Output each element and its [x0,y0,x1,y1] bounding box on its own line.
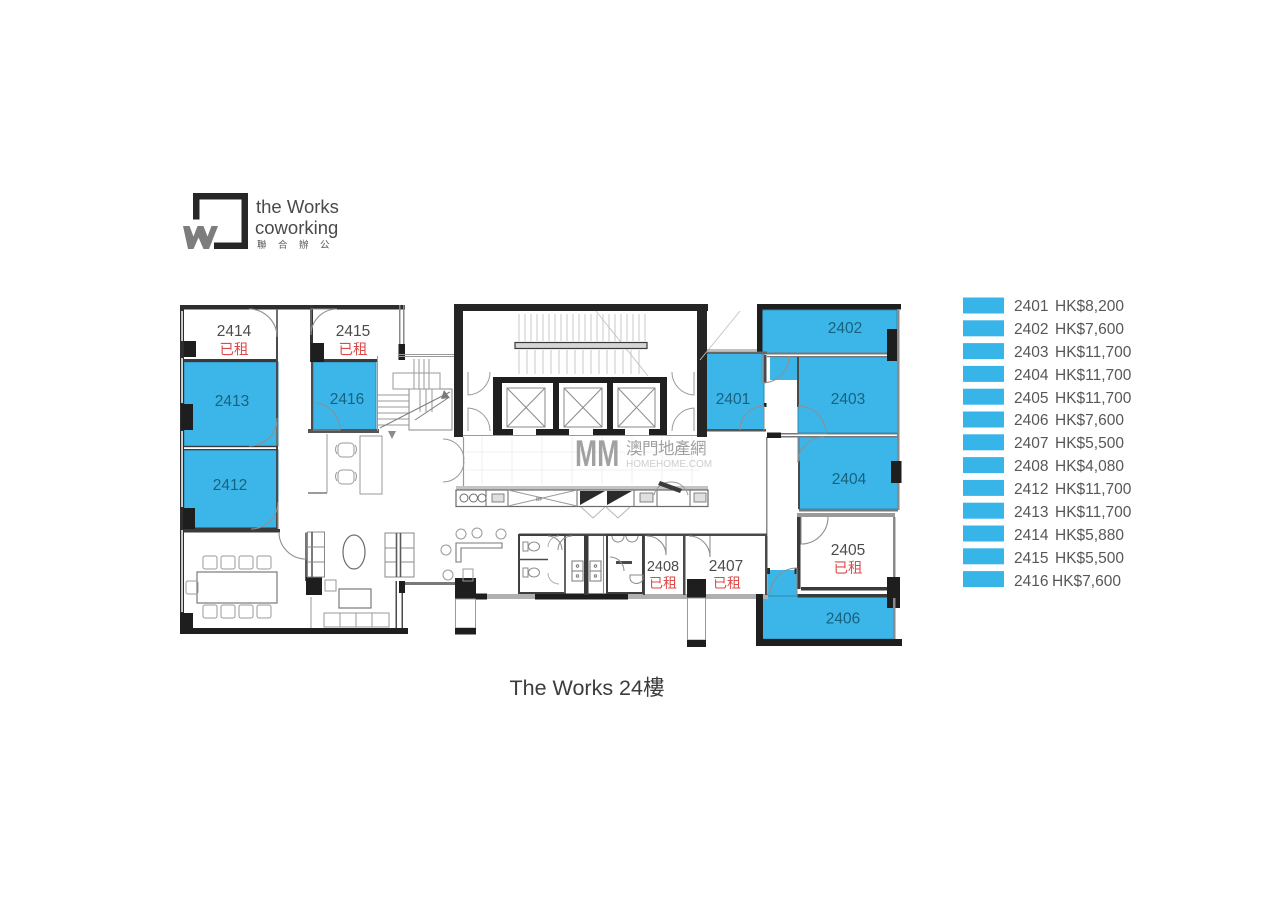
svg-text:2403: 2403 [831,391,865,408]
svg-text:the Works: the Works [256,196,339,217]
svg-text:HK$5,500: HK$5,500 [1055,550,1124,567]
svg-text:HK$5,880: HK$5,880 [1055,527,1124,544]
svg-text:2406: 2406 [826,611,860,628]
svg-text:2406: 2406 [1014,412,1048,429]
svg-text:已租: 已租 [339,342,368,359]
svg-text:澳門地產網: 澳門地產網 [626,439,706,458]
svg-text:2403: 2403 [1014,344,1048,361]
svg-text:2412: 2412 [213,477,247,494]
svg-text:HOMEHOME.COM: HOMEHOME.COM [626,459,712,470]
svg-text:2416: 2416 [1014,573,1048,590]
svg-text:HK$11,700: HK$11,700 [1055,481,1132,498]
svg-text:BF: BF [536,497,542,503]
svg-text:HK$11,700: HK$11,700 [1055,390,1132,407]
svg-text:HK$7,600: HK$7,600 [1052,573,1121,590]
svg-text:2407: 2407 [709,558,743,575]
svg-text:2416: 2416 [330,391,364,408]
svg-text:2414: 2414 [217,323,252,340]
svg-text:已租: 已租 [649,575,677,591]
svg-text:聯合辦公: 聯合辦公 [257,239,341,251]
svg-text:HK$11,700: HK$11,700 [1055,367,1132,384]
svg-text:2408: 2408 [647,559,679,575]
svg-text:MM: MM [575,433,619,474]
svg-text:coworking: coworking [255,217,338,238]
svg-text:HK$11,700: HK$11,700 [1055,344,1132,361]
svg-text:HK$7,600: HK$7,600 [1055,412,1124,429]
svg-text:已租: 已租 [713,575,741,591]
svg-text:2413: 2413 [215,393,249,410]
svg-text:2405: 2405 [831,542,865,559]
svg-text:2404: 2404 [832,471,867,488]
svg-text:已租: 已租 [220,342,249,359]
svg-text:HK$8,200: HK$8,200 [1055,298,1124,315]
svg-text:2407: 2407 [1014,435,1048,452]
svg-text:2408: 2408 [1014,458,1048,475]
svg-text:2405: 2405 [1014,390,1048,407]
svg-text:已租: 已租 [834,560,863,577]
svg-text:2414: 2414 [1014,527,1049,544]
svg-text:2412: 2412 [1014,481,1048,498]
svg-text:HK$7,600: HK$7,600 [1055,321,1124,338]
svg-text:2402: 2402 [1014,321,1048,338]
svg-text:2401: 2401 [716,391,750,408]
svg-text:2402: 2402 [828,320,862,337]
svg-text:2415: 2415 [336,323,370,340]
svg-text:HK$11,700: HK$11,700 [1055,504,1132,521]
svg-text:2401: 2401 [1014,298,1048,315]
svg-text:2413: 2413 [1014,504,1048,521]
svg-text:The Works 24樓: The Works 24樓 [510,676,665,700]
svg-text:2415: 2415 [1014,550,1048,567]
svg-text:HK$4,080: HK$4,080 [1055,458,1124,475]
svg-text:HK$5,500: HK$5,500 [1055,435,1124,452]
svg-text:2404: 2404 [1014,367,1049,384]
